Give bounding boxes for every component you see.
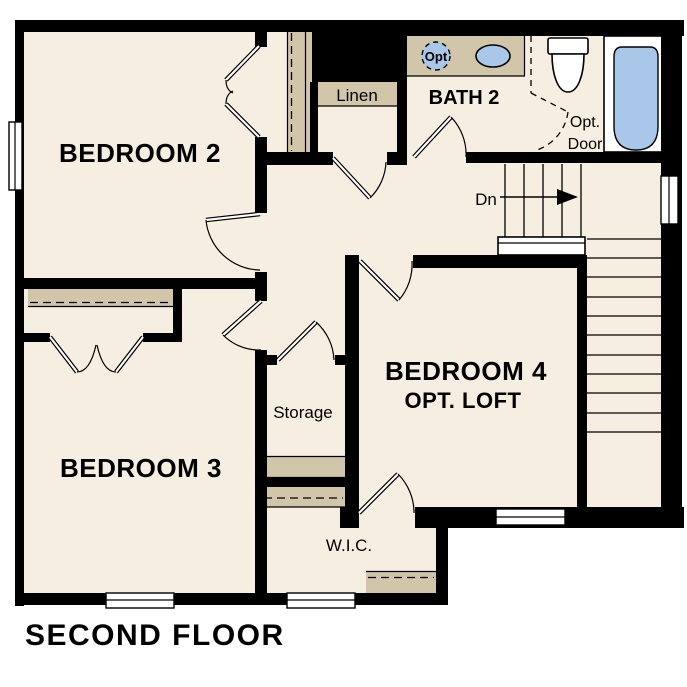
wall-segment xyxy=(143,333,182,342)
wall-segment xyxy=(255,478,347,487)
wall-segment xyxy=(310,82,318,155)
wall-segment xyxy=(255,350,267,593)
window-bedroom2 xyxy=(9,122,22,190)
bedroom4-label: BEDROOM 4 xyxy=(385,356,547,386)
sink-symbol xyxy=(476,45,510,67)
wall-segment xyxy=(255,137,267,213)
storage-label: Storage xyxy=(273,403,333,422)
window-stairs xyxy=(661,176,678,224)
wall-segment xyxy=(255,152,333,165)
stair-down-label: Dn xyxy=(475,190,497,209)
bath2-label: BATH 2 xyxy=(429,87,500,109)
bedroom3-label: BEDROOM 3 xyxy=(60,453,222,483)
optional-door-label-line1: Opt. xyxy=(570,114,600,131)
bedroom3-closet-shelf xyxy=(28,289,173,306)
wall-segment xyxy=(312,20,406,82)
optional-door-label-line2: Door xyxy=(568,136,603,153)
opt-loft-label: OPT. LOFT xyxy=(405,388,522,413)
stair-landing xyxy=(498,237,585,255)
wic-label: W.I.C. xyxy=(326,536,372,555)
toilet-tank-symbol xyxy=(548,38,588,54)
wic-bottom-shelf xyxy=(366,571,436,593)
wall-segment xyxy=(661,20,682,528)
wall-segment xyxy=(15,20,318,32)
wall-segment xyxy=(399,20,684,36)
wall-segment xyxy=(413,255,587,268)
wall-segment xyxy=(24,333,50,342)
wall-segment xyxy=(255,28,267,47)
linen-label: Linen xyxy=(336,86,378,105)
wall-segment xyxy=(345,255,359,513)
bedroom2-label: BEDROOM 2 xyxy=(59,138,221,168)
window-bedroom3 xyxy=(106,593,174,608)
bedroom2-closet-shelf xyxy=(287,30,312,154)
optional-sink-label: Opt xyxy=(425,49,448,64)
bathtub-symbol xyxy=(614,47,658,150)
window-bedroom4 xyxy=(496,509,565,525)
floor-plan: BEDROOM 2 BEDROOM 3 BEDROOM 4 OPT. LOFT … xyxy=(0,0,687,687)
wall-segment xyxy=(577,255,587,528)
wall-segment xyxy=(436,513,448,597)
plan-title: SECOND FLOOR xyxy=(25,619,285,652)
wic-top-shelf xyxy=(262,487,345,507)
wall-segment xyxy=(15,20,24,606)
wall-segment xyxy=(387,152,397,165)
wall-segment xyxy=(466,152,661,163)
wall-segment xyxy=(15,593,448,605)
storage-shelf xyxy=(262,456,347,478)
floor-plan-page: BEDROOM 2 BEDROOM 3 BEDROOM 4 OPT. LOFT … xyxy=(0,0,687,687)
wall-segment xyxy=(255,355,277,365)
window-wic xyxy=(287,593,355,608)
wall-segment xyxy=(397,20,407,165)
wall-segment xyxy=(255,289,267,301)
wall-segment xyxy=(15,278,267,289)
